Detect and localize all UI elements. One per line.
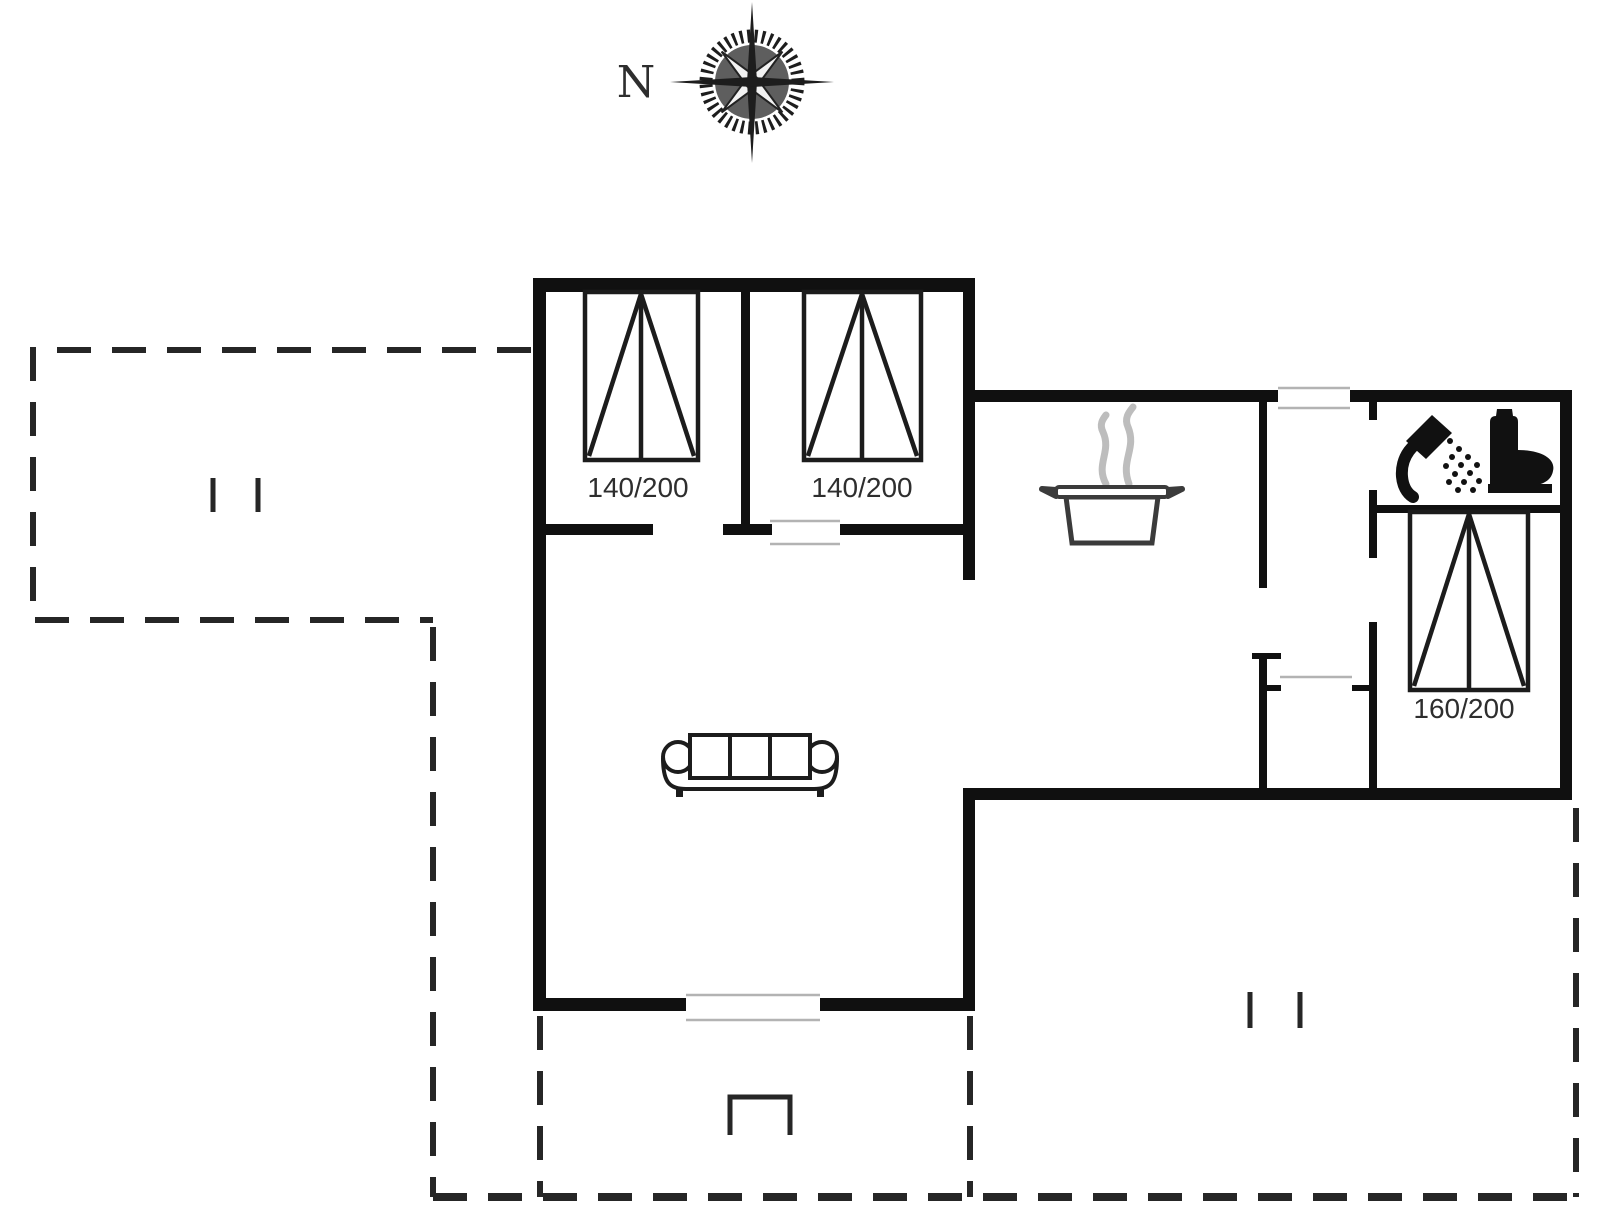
toilet-body <box>1490 409 1553 486</box>
door-jamb-tick <box>1352 685 1377 691</box>
steam-wisp <box>1126 407 1133 484</box>
door-opening-lines <box>686 388 1352 1020</box>
bed3-size-label: 160/200 <box>1413 693 1514 724</box>
compass-rose-icon: N <box>617 2 834 163</box>
pot-steam <box>1101 407 1133 484</box>
pot-rim <box>1056 487 1168 497</box>
toilet-base <box>1488 484 1552 493</box>
wall-kitchen-top-b <box>1350 390 1572 402</box>
wall-right-section-bottom <box>963 788 1572 800</box>
wall-bedrooms-bottom-c <box>840 524 963 535</box>
floor-plan-drawing: N <box>0 0 1606 1205</box>
wall-hall-left-a <box>1259 402 1267 588</box>
terrace-left-outline <box>33 350 531 620</box>
double-bed-icon-3 <box>1410 512 1528 690</box>
bed1-size-label: 140/200 <box>587 472 688 503</box>
wall-living-bottom-b <box>820 998 975 1011</box>
sofa-foot <box>676 789 683 797</box>
wall-right <box>1560 390 1572 800</box>
sofa-cushions <box>690 735 810 778</box>
wall-bedroom3-left <box>1369 622 1377 788</box>
wall-bedrooms-bottom-b <box>723 524 772 535</box>
sofa-foot <box>817 789 824 797</box>
wall-bath-left-mid <box>1369 490 1377 558</box>
door-jamb-tick <box>1252 653 1281 659</box>
wall-left <box>533 278 546 1011</box>
wall-bedrooms-bottom-a <box>546 524 653 535</box>
wall-bedroom2-right <box>963 278 975 580</box>
double-bed-icon-1 <box>585 292 698 460</box>
bed2-size-label: 140/200 <box>811 472 912 503</box>
floor-plan: N <box>0 0 1606 1205</box>
pot-body-group <box>1042 487 1182 543</box>
door-jamb-tick <box>1259 685 1281 691</box>
shower-icon <box>1402 415 1482 497</box>
shower-spray <box>1443 438 1482 493</box>
cooking-pot-icon <box>1042 407 1182 543</box>
wall-living-bottom-a <box>533 998 686 1011</box>
wall-bath-left-stub <box>1369 402 1377 420</box>
compass-north-label: N <box>617 57 656 108</box>
compass-needle-ew <box>670 77 834 87</box>
toilet-icon <box>1488 409 1553 493</box>
bathroom-icons <box>1402 409 1554 497</box>
steam-wisp <box>1101 415 1106 484</box>
double-bed-icon-2 <box>804 292 921 460</box>
table-icon <box>730 1097 790 1135</box>
wall-step-connector <box>963 788 975 1011</box>
wall-kitchen-top-a <box>963 390 1278 402</box>
pot-body <box>1066 497 1158 543</box>
wall-hall-left-b <box>1259 653 1267 788</box>
sofa-icon <box>663 735 837 797</box>
wall-bedroom-divider <box>741 286 750 535</box>
